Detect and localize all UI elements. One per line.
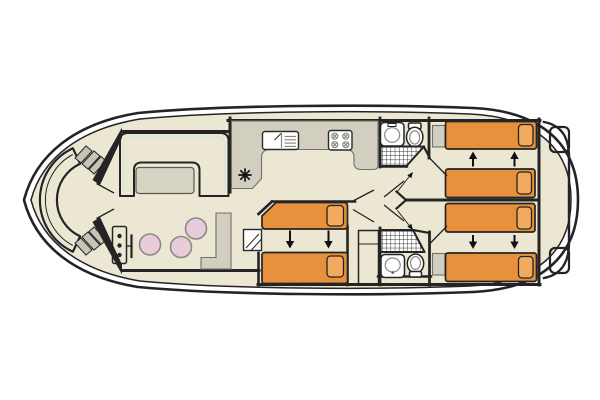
pillow: [519, 257, 534, 279]
galley-sink-unit: [263, 132, 299, 150]
dining-table: [136, 168, 194, 194]
heater-symbol: [239, 169, 251, 181]
pillow: [517, 207, 532, 229]
pillow: [519, 125, 534, 147]
pillow: [327, 206, 344, 227]
stool: [186, 218, 207, 239]
nightstand: [433, 126, 446, 148]
toilet-cistern: [410, 272, 422, 278]
nightstand: [433, 254, 446, 276]
stool: [171, 237, 192, 258]
boat-floor-plan: [0, 0, 600, 400]
console-knob: [117, 234, 121, 238]
stool: [140, 234, 161, 255]
pillow: [517, 172, 532, 194]
floor-plan-canvas: [0, 0, 600, 400]
hob-4-burner: [329, 131, 353, 151]
console-knob: [117, 243, 121, 247]
basin-drain: [391, 271, 394, 274]
console-knob: [117, 253, 121, 257]
pillow: [327, 256, 344, 277]
